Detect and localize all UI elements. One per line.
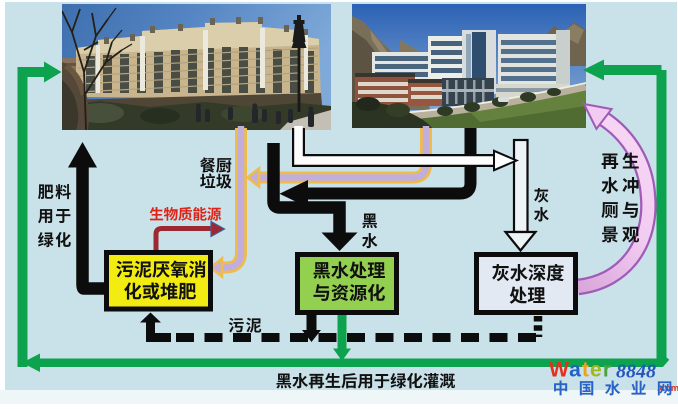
svg-text:8848: 8848 (616, 361, 656, 383)
svg-text:Water: Water (549, 359, 612, 382)
